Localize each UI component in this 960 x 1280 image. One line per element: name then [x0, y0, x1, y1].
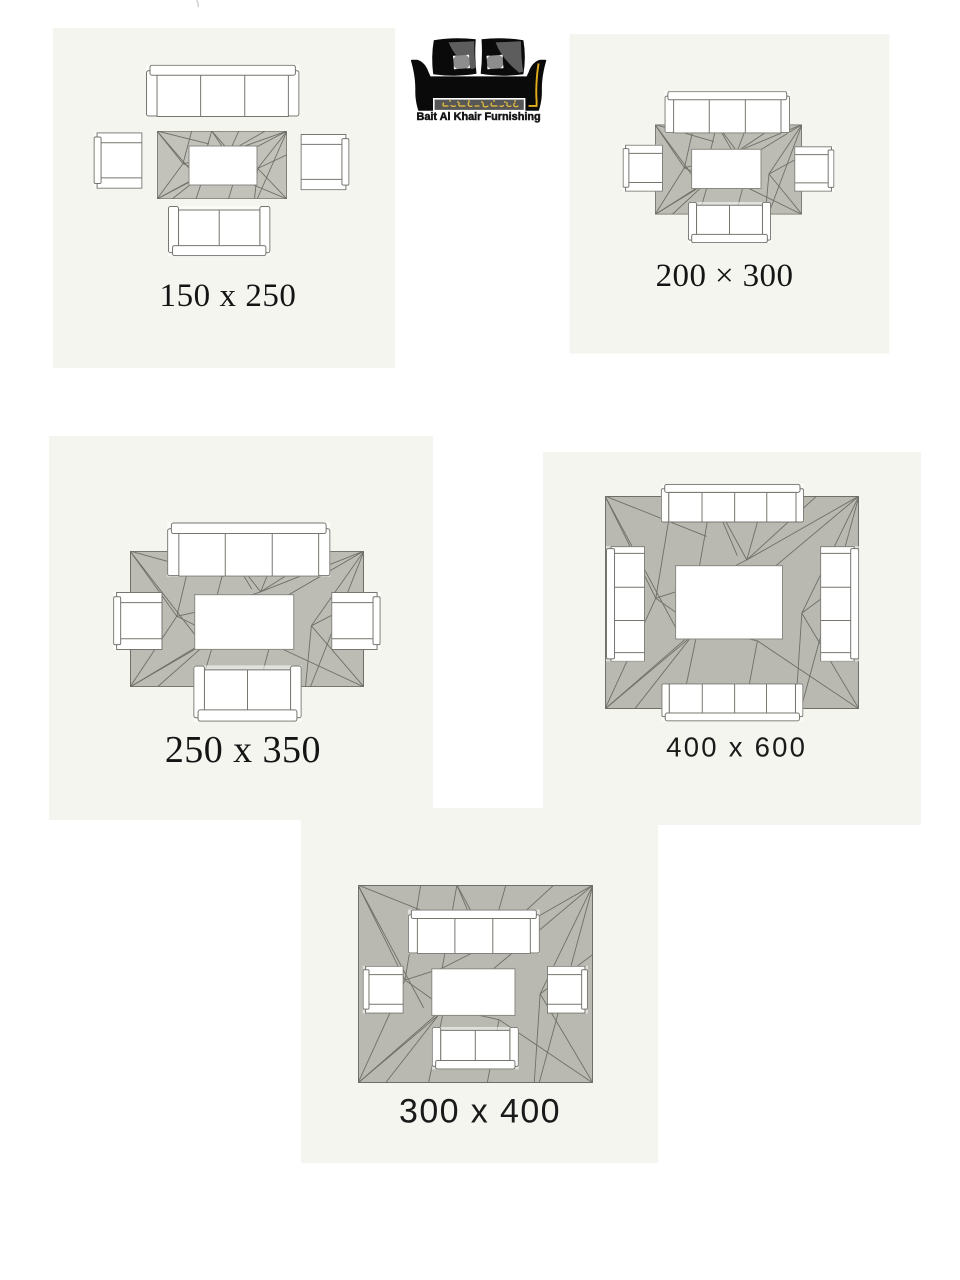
svg-text:400 x 600: 400 x 600 — [666, 732, 807, 763]
svg-text:Bait Al Khair Furnishing: Bait Al Khair Furnishing — [416, 111, 540, 123]
svg-text:300 x 400: 300 x 400 — [399, 1093, 561, 1131]
svg-text:200 × 300: 200 × 300 — [656, 258, 794, 294]
svg-text:150 x 250: 150 x 250 — [160, 278, 297, 314]
svg-text:250 x 350: 250 x 350 — [165, 729, 321, 771]
